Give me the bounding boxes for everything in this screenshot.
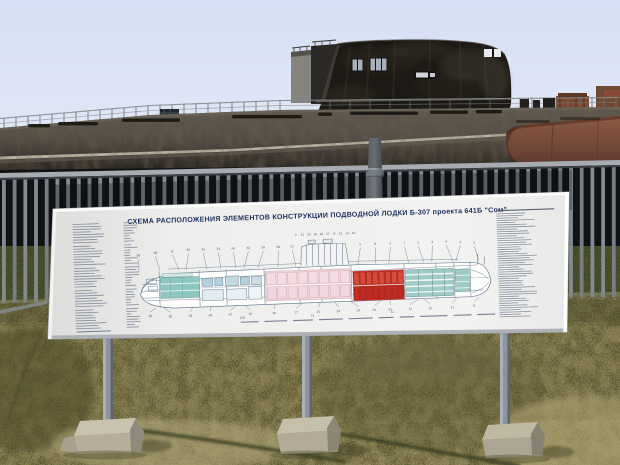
svg-text:14: 14 [345,231,349,235]
svg-text:11: 11 [311,313,315,317]
svg-text:12: 12 [409,307,413,311]
svg-text:13: 13 [352,231,356,235]
svg-text:68: 68 [137,253,141,257]
svg-text:30: 30 [169,314,173,318]
svg-text:21: 21 [301,233,305,237]
svg-text:64: 64 [232,246,236,250]
svg-text:69: 69 [154,251,158,255]
svg-text:29: 29 [189,314,193,318]
svg-text:66: 66 [187,248,191,252]
svg-text:31: 31 [451,305,455,309]
svg-text:20: 20 [307,232,311,236]
svg-text:58: 58 [276,245,280,249]
svg-text:23: 23 [217,247,221,251]
svg-text:18: 18 [320,232,324,236]
svg-text:24: 24 [357,308,361,312]
svg-text:65: 65 [202,247,206,251]
svg-text:45: 45 [273,311,277,315]
svg-text:11: 11 [391,310,395,314]
svg-text:46: 46 [249,312,253,316]
svg-text:19: 19 [313,232,317,236]
svg-text:15: 15 [339,231,343,235]
svg-text:27: 27 [295,310,299,314]
svg-text:59: 59 [261,245,265,249]
svg-text:34: 34 [373,308,377,312]
svg-text:57: 57 [290,244,294,248]
svg-text:17: 17 [326,232,330,236]
svg-text:48: 48 [209,313,213,317]
svg-text:60: 60 [246,246,250,250]
svg-text:47: 47 [229,312,233,316]
svg-text:23: 23 [337,309,341,313]
svg-text:26: 26 [149,314,153,318]
svg-text:11: 11 [429,306,433,310]
svg-text:25: 25 [317,310,321,314]
